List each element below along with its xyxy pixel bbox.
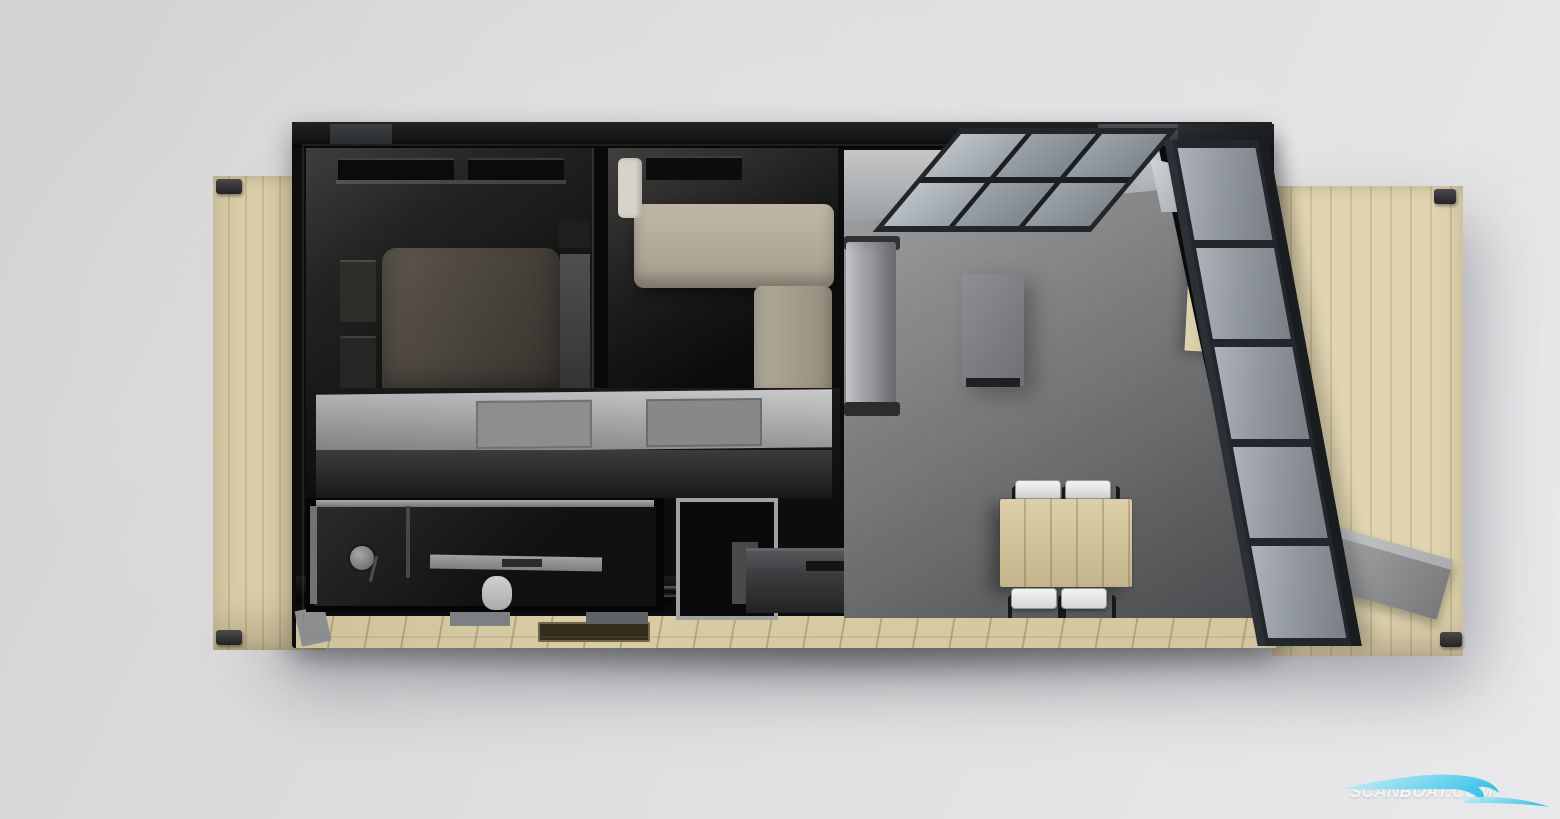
sink-basin — [502, 559, 542, 567]
bedside-shelf — [558, 220, 590, 248]
bathroom-wall — [316, 500, 654, 507]
double-bed — [382, 248, 560, 404]
dining-chair-seat — [1015, 480, 1061, 501]
deck-cleat — [1434, 189, 1456, 204]
coffee-table — [962, 274, 1024, 386]
dining-chair-seat — [1061, 588, 1107, 609]
bedroom-window — [338, 158, 454, 180]
glass-pane — [1196, 248, 1291, 340]
dining-chair-seat — [1065, 480, 1111, 501]
deck-cleat — [1440, 632, 1462, 647]
door-threshold — [450, 612, 510, 626]
sofa — [846, 242, 896, 416]
dining-chair-seat — [1011, 588, 1057, 609]
glass-pane — [1233, 447, 1328, 539]
bedroom-window — [646, 156, 742, 180]
room-second-bedroom — [608, 148, 838, 388]
shower-head — [350, 546, 374, 570]
wardrobe-door — [646, 398, 762, 447]
bedroom-floor-strip — [560, 254, 590, 404]
shower-glass — [406, 506, 410, 578]
watermark: SCANBOAT.COM — [1338, 762, 1558, 818]
room-master-bedroom — [306, 148, 592, 388]
window-sill — [336, 180, 566, 184]
deck-cleat — [216, 179, 242, 194]
glass-pane — [1251, 546, 1346, 638]
corridor — [306, 388, 840, 500]
pillow — [618, 158, 642, 218]
toilet — [482, 576, 512, 610]
walkway-step — [538, 622, 650, 642]
coffee-table-base — [966, 378, 1020, 387]
glass-pane — [1214, 347, 1309, 439]
corridor-floor — [316, 450, 832, 498]
dining-table — [1000, 499, 1132, 587]
glass-pane — [1177, 148, 1272, 240]
bathroom-wall — [310, 506, 317, 604]
deck-cleat — [216, 630, 242, 645]
nightstand — [340, 336, 376, 396]
roof-segment — [330, 124, 392, 144]
scanboat-wave-icon — [1338, 762, 1558, 818]
houseboat-floorplan-render: SCANBOAT.COM — [0, 0, 1560, 819]
wardrobe-door — [476, 400, 592, 449]
nightstand — [340, 260, 376, 322]
room-bathroom — [306, 498, 664, 612]
wardrobe — [316, 389, 832, 452]
single-bed — [634, 204, 834, 288]
hull — [292, 122, 1272, 648]
bedroom-window — [468, 158, 564, 180]
sofa-armrest — [844, 402, 900, 416]
side-walkway — [296, 616, 1276, 648]
